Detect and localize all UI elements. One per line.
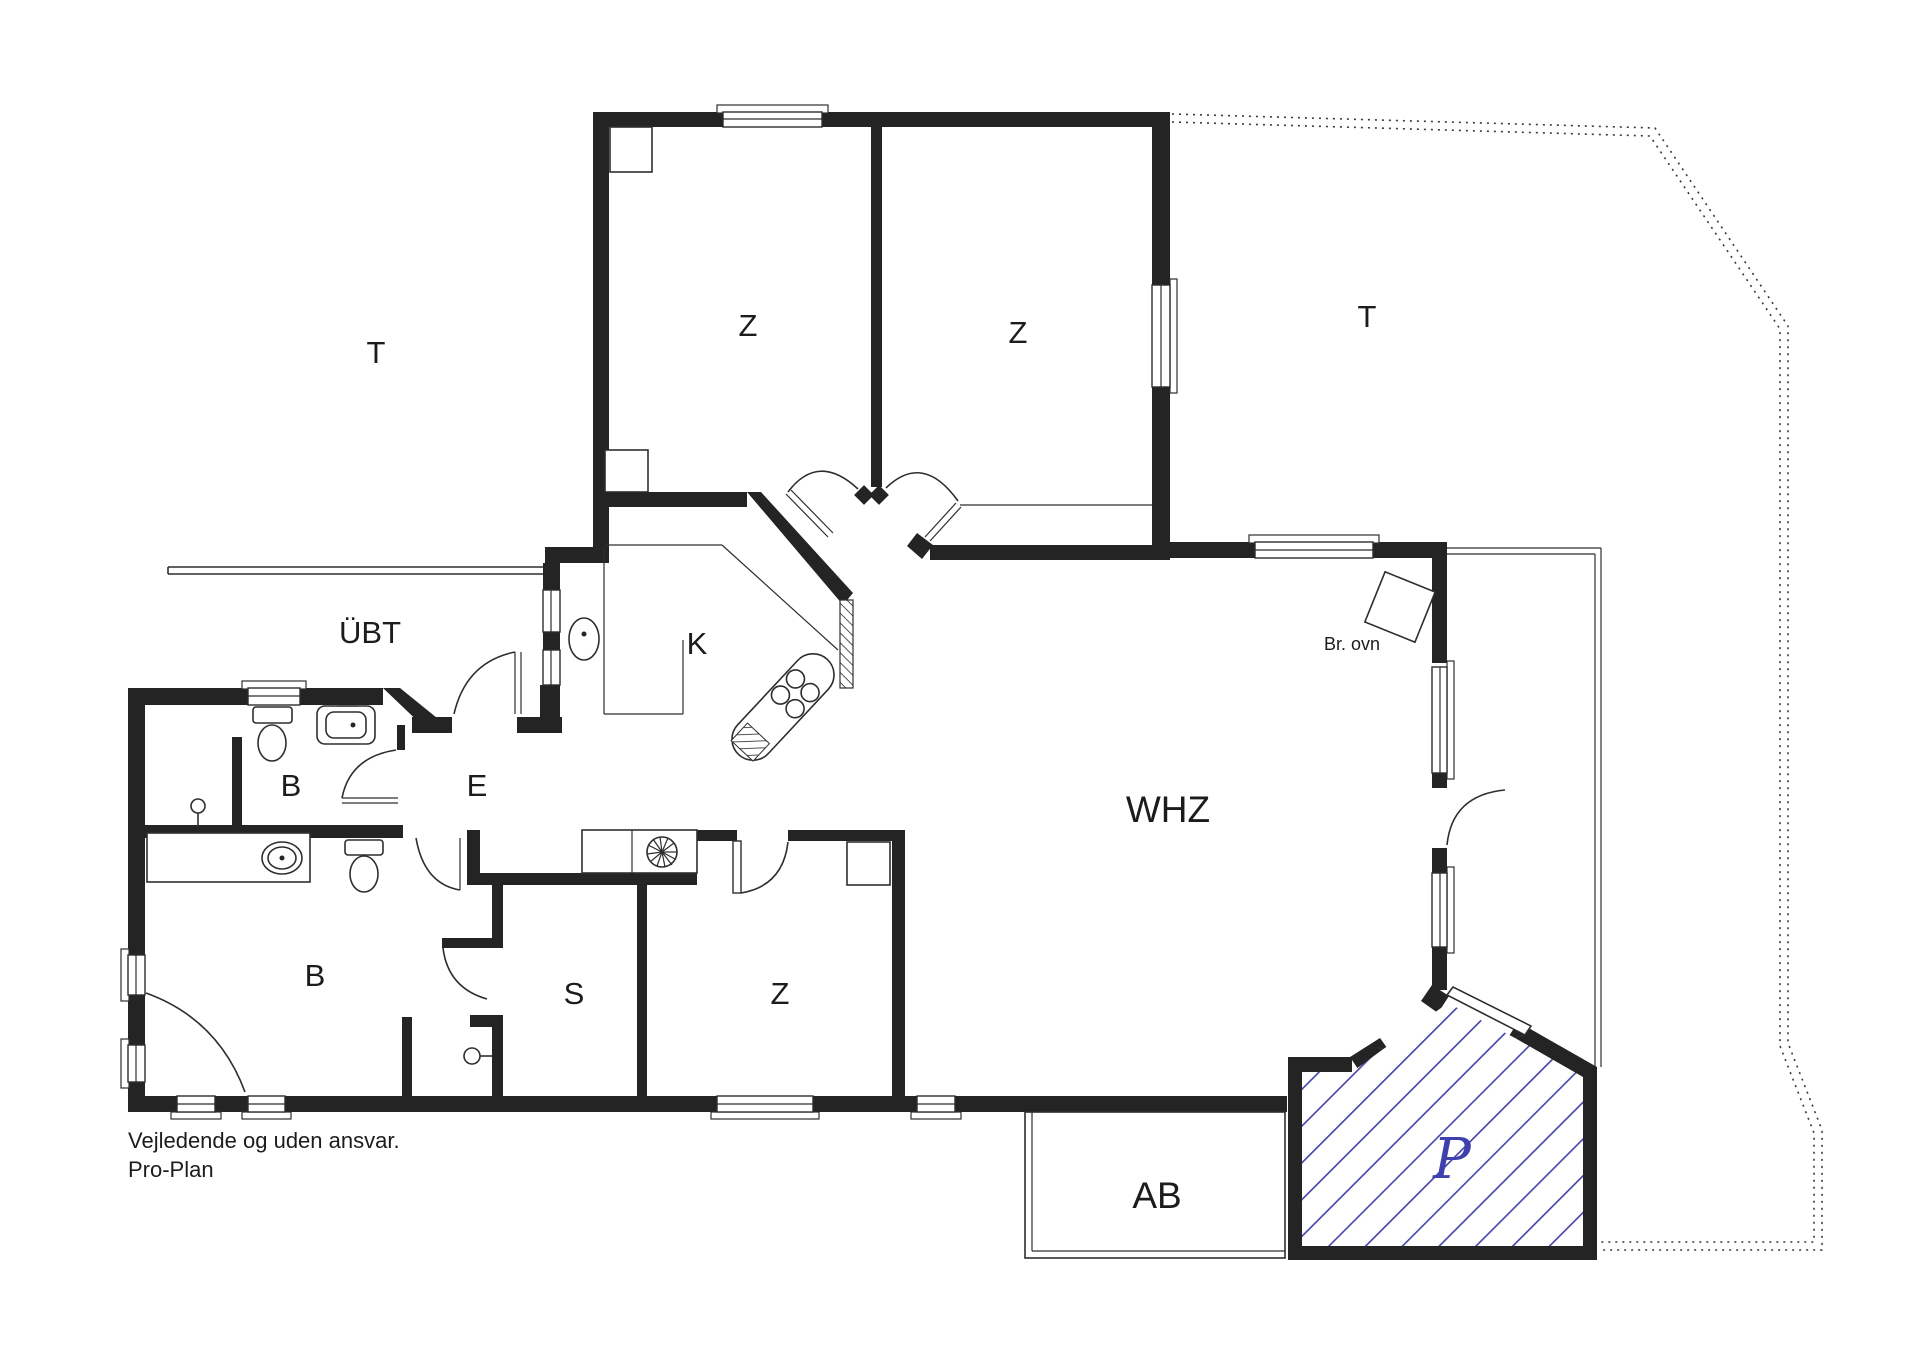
closet-bedroom-bottom [847,842,890,885]
door-entry [454,652,521,714]
basin-entry [569,618,599,660]
room-label-living: WHZ [1126,789,1210,830]
covered-terrace-outline [168,567,545,574]
window-bath-large-1 [121,949,145,1001]
room-label-bath-large: B [305,958,326,993]
doors [146,471,1531,1092]
toilet-bath-small [253,707,292,761]
window-bottom-bedroom [711,1096,819,1119]
brand-text: Pro-Plan [128,1157,214,1182]
kitchen-island [723,645,842,769]
boiler-fan-symbol [647,837,677,867]
room-label-hall: E [467,768,488,803]
window-bottom-2 [242,1096,291,1119]
kitchen-half-wall-hatched [840,600,853,688]
door-living-east [1447,790,1505,845]
door-hall-double-left [786,471,858,537]
window-top-bedroom [717,105,828,127]
room-label-terrace-left: T [367,335,386,370]
basin-bath-large [262,842,302,874]
window-living-east-1 [1432,661,1454,779]
door-bath-large-corner [146,993,245,1092]
room-label-annex: AB [1132,1175,1181,1216]
window-entry-glazing-2 [543,650,560,685]
closet-bedroom-left-lower [605,450,648,492]
room-label-bedroom-top-right: Z [1009,315,1028,350]
room-label-storage: S [564,976,585,1011]
shower-head-bath-small [191,799,205,828]
shower-faucet [464,1048,492,1064]
door-bath-large [416,838,460,890]
window-bottom-1 [171,1096,221,1119]
floor-plan-page: T Z Z T ÜBT K Br. ovn B E WHZ B S Z AB P… [0,0,1920,1357]
wood-stove [1365,572,1435,642]
window-east-bedroom [1152,279,1177,393]
room-label-bedroom-bottom: Z [771,976,790,1011]
door-bedroom-bottom [733,841,788,893]
closet-boiler [582,830,697,873]
closet-bedroom-top-left [610,127,652,172]
room-label-kitchen: K [687,626,708,661]
floor-plan-svg: T Z Z T ÜBT K Br. ovn B E WHZ B S Z AB P… [0,0,1920,1357]
room-label-terrace-right: T [1358,299,1377,334]
room-label-parking: P [1432,1127,1472,1192]
window-bottom-living [911,1096,961,1119]
window-living-north [1249,535,1379,558]
room-label-bath-small: B [281,768,302,803]
window-bath-small [242,681,306,705]
toilet-bath-large [345,840,383,892]
sink-bath-small [317,706,375,744]
room-label-covered-terrace: ÜBT [339,615,401,650]
window-entry-glazing-1 [543,590,560,632]
door-hall-double-right [886,473,961,541]
window-living-east-2 [1432,867,1454,953]
disclaimer-text: Vejledende og uden ansvar. [128,1128,400,1153]
room-label-bedroom-top-left: Z [739,308,758,343]
door-shower [443,948,487,999]
terrace-right-deck-outline [1447,548,1601,1067]
window-bath-large-2 [121,1039,145,1088]
footer-texts: Vejledende og uden ansvar. Pro-Plan [128,1128,400,1182]
door-bath-small [342,750,398,803]
annotation-wood-stove: Br. ovn [1324,634,1380,654]
